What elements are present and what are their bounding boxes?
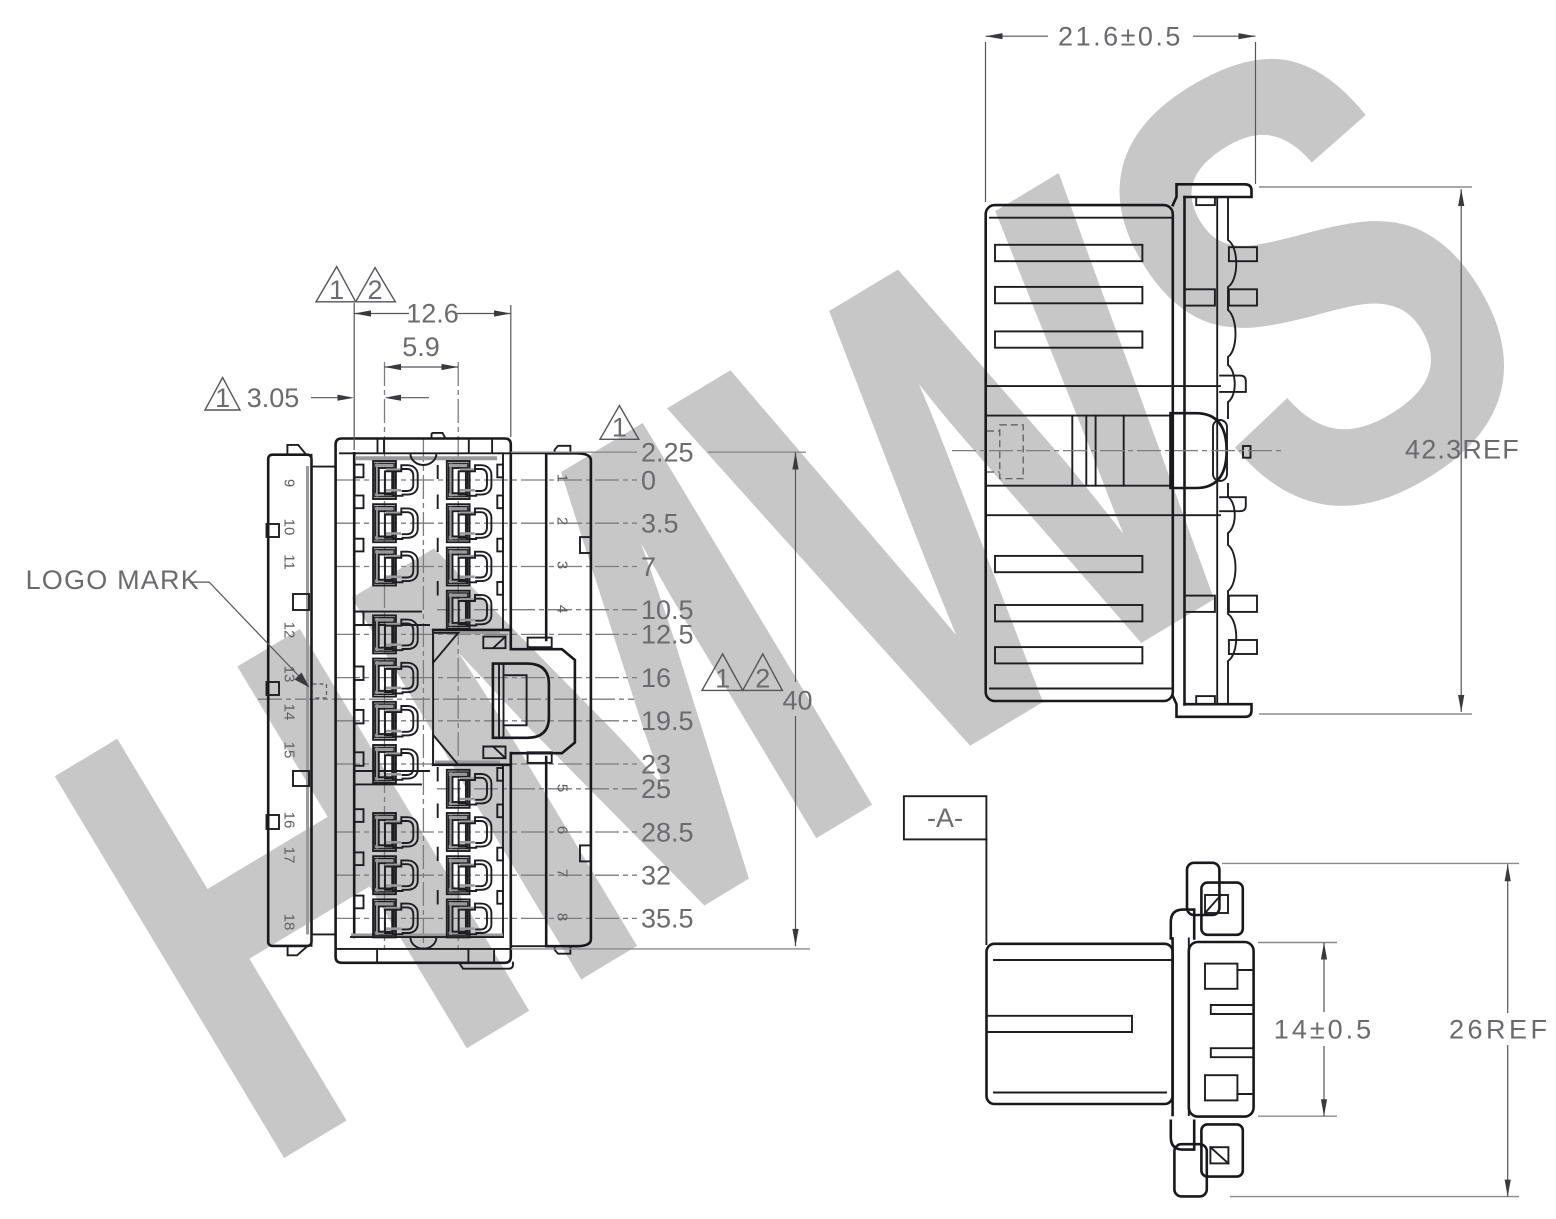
svg-text:10: 10	[281, 519, 298, 536]
svg-text:16: 16	[281, 812, 298, 829]
svg-text:32: 32	[641, 861, 671, 891]
svg-text:12.5: 12.5	[641, 620, 694, 650]
svg-text:15: 15	[281, 742, 298, 759]
svg-text:13: 13	[281, 666, 298, 683]
svg-text:3.05: 3.05	[247, 383, 300, 413]
svg-text:42.3REF: 42.3REF	[1405, 435, 1520, 465]
svg-text:35.5: 35.5	[641, 904, 694, 934]
svg-text:8: 8	[554, 913, 571, 921]
svg-text:2: 2	[755, 664, 770, 694]
svg-text:6: 6	[554, 826, 571, 834]
svg-text:3: 3	[554, 561, 571, 569]
svg-text:1: 1	[215, 383, 230, 413]
svg-text:2.25: 2.25	[641, 438, 694, 468]
svg-text:2: 2	[367, 275, 382, 305]
svg-text:1: 1	[612, 413, 627, 443]
svg-text:1: 1	[554, 474, 571, 482]
svg-text:21.6±0.5: 21.6±0.5	[1058, 22, 1183, 52]
svg-text:25: 25	[641, 774, 671, 804]
svg-text:-A-: -A-	[927, 803, 963, 833]
svg-text:11: 11	[281, 554, 298, 570]
svg-text:2: 2	[554, 517, 571, 525]
svg-text:16: 16	[641, 663, 671, 693]
svg-text:12.6: 12.6	[406, 299, 459, 329]
svg-text:14: 14	[281, 704, 298, 721]
svg-text:12: 12	[281, 622, 298, 639]
svg-text:1: 1	[715, 664, 730, 694]
svg-text:40: 40	[782, 686, 812, 716]
svg-text:7: 7	[641, 552, 656, 582]
svg-text:3.5: 3.5	[641, 509, 679, 539]
svg-text:17: 17	[281, 847, 298, 864]
svg-text:4: 4	[554, 605, 571, 613]
svg-text:1: 1	[329, 275, 344, 305]
svg-text:14±0.5: 14±0.5	[1274, 1015, 1374, 1045]
svg-text:LOGO MARK: LOGO MARK	[26, 565, 200, 595]
svg-text:5.9: 5.9	[402, 332, 440, 362]
svg-text:7: 7	[554, 869, 571, 877]
svg-text:28.5: 28.5	[641, 817, 694, 847]
svg-text:18: 18	[281, 914, 298, 931]
svg-text:5: 5	[554, 784, 571, 792]
svg-text:26REF: 26REF	[1449, 1015, 1551, 1045]
svg-text:19.5: 19.5	[641, 706, 694, 736]
svg-text:0: 0	[641, 465, 656, 495]
svg-text:9: 9	[281, 479, 298, 487]
